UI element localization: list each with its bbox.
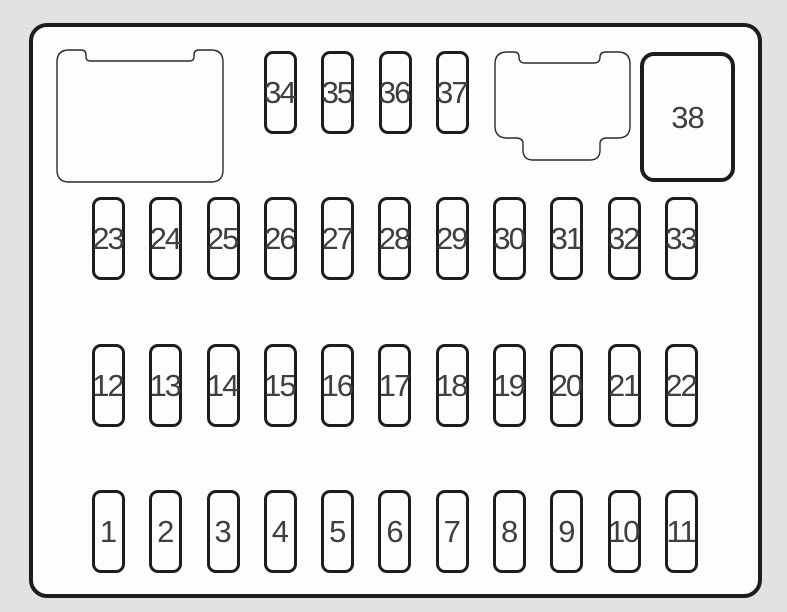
fuse-14: 14	[207, 344, 240, 427]
fuse-11: 11	[665, 490, 698, 573]
fuse-29: 29	[436, 197, 469, 280]
fuse-label: 18	[436, 370, 466, 401]
fuse-10: 10	[608, 490, 641, 573]
fuse-5: 5	[321, 490, 354, 573]
fuse-label: 2	[157, 516, 172, 547]
fuse-23: 23	[92, 197, 125, 280]
fuse-3: 3	[207, 490, 240, 573]
fuse-row-12-22: 12 13 14 15 16 17 18 19 20 21 22	[92, 344, 698, 427]
fuse-label: 17	[379, 370, 409, 401]
fuse-35: 35	[321, 51, 354, 134]
fuse-18: 18	[436, 344, 469, 427]
fuse-label: 36	[379, 77, 409, 108]
fuse-30: 30	[493, 197, 526, 280]
fuse-label: 15	[264, 370, 294, 401]
fuse-label: 30	[493, 223, 523, 254]
fuse-33: 33	[665, 197, 698, 280]
fuse-label: 7	[444, 516, 459, 547]
fuse-row-1-11: 1 2 3 4 5 6 7 8 9 10 11	[92, 490, 698, 573]
relay-block-outline	[57, 50, 223, 182]
fuse-17: 17	[378, 344, 411, 427]
fuse-label: 10	[608, 516, 638, 547]
fuse-31: 31	[550, 197, 583, 280]
fuse-6: 6	[378, 490, 411, 573]
fuse-38: 38	[640, 52, 735, 182]
fuse-38-label: 38	[671, 102, 703, 133]
fuse-label: 11	[666, 516, 694, 547]
fuse-25: 25	[207, 197, 240, 280]
fuse-label: 32	[608, 223, 638, 254]
fuse-box-diagram: 34 35 36 37 23 24 25 26 27 28 29 30 31 3…	[0, 0, 787, 612]
fuse-label: 13	[150, 370, 180, 401]
fuse-label: 22	[665, 370, 695, 401]
fuse-label: 12	[92, 370, 122, 401]
fuse-12: 12	[92, 344, 125, 427]
fuse-21: 21	[608, 344, 641, 427]
fuse-label: 14	[207, 370, 237, 401]
fuse-7: 7	[436, 490, 469, 573]
fuse-label: 27	[321, 223, 351, 254]
fuse-label: 31	[551, 223, 581, 254]
fuse-row-23-33: 23 24 25 26 27 28 29 30 31 32 33	[92, 197, 698, 280]
fuse-label: 9	[558, 516, 573, 547]
fuse-label: 24	[150, 223, 180, 254]
fuse-label: 3	[214, 516, 229, 547]
fuse-row-34-37: 34 35 36 37	[264, 51, 469, 134]
fuse-22: 22	[665, 344, 698, 427]
fuse-label: 29	[436, 223, 466, 254]
fuse-box-panel: 34 35 36 37 23 24 25 26 27 28 29 30 31 3…	[29, 23, 762, 598]
fuse-label: 8	[501, 516, 516, 547]
fuse-label: 37	[436, 77, 466, 108]
fuse-label: 6	[386, 516, 401, 547]
fuse-label: 1	[100, 516, 115, 547]
fuse-16: 16	[321, 344, 354, 427]
fuse-label: 33	[665, 223, 695, 254]
fuse-label: 5	[329, 516, 344, 547]
fuse-label: 20	[551, 370, 581, 401]
fuse-label: 16	[321, 370, 351, 401]
fuse-9: 9	[550, 490, 583, 573]
fuse-label: 35	[322, 77, 352, 108]
fuse-label: 21	[608, 370, 638, 401]
fuse-4: 4	[264, 490, 297, 573]
fuse-28: 28	[378, 197, 411, 280]
fuse-19: 19	[493, 344, 526, 427]
fuse-label: 25	[207, 223, 237, 254]
connector-socket-outline	[495, 52, 630, 160]
fuse-34: 34	[264, 51, 297, 134]
fuse-27: 27	[321, 197, 354, 280]
fuse-20: 20	[550, 344, 583, 427]
fuse-label: 28	[379, 223, 409, 254]
fuse-24: 24	[149, 197, 182, 280]
fuse-2: 2	[149, 490, 182, 573]
fuse-label: 19	[493, 370, 523, 401]
fuse-36: 36	[379, 51, 412, 134]
fuse-37: 37	[436, 51, 469, 134]
fuse-1: 1	[92, 490, 125, 573]
fuse-15: 15	[264, 344, 297, 427]
fuse-label: 23	[92, 223, 122, 254]
fuse-label: 4	[272, 516, 287, 547]
fuse-13: 13	[149, 344, 182, 427]
fuse-label: 26	[264, 223, 294, 254]
fuse-label: 34	[264, 77, 294, 108]
fuse-8: 8	[493, 490, 526, 573]
fuse-26: 26	[264, 197, 297, 280]
fuse-32: 32	[608, 197, 641, 280]
